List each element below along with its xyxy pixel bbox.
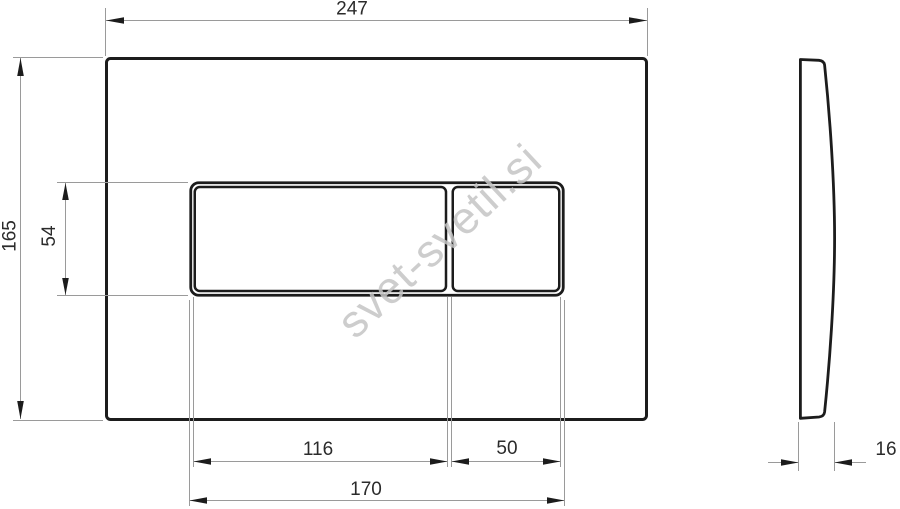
arrow-170-left [190,497,208,504]
technical-drawing-page: svet-svetil.si [0,0,900,509]
side-view [800,60,834,419]
side-profile-outline [800,60,834,419]
flush-plate-technical-drawing: svet-svetil.si [0,0,900,509]
arrow-247-left [106,17,124,24]
arrow-116-left [194,458,212,465]
arrow-54-top [62,183,69,200]
arrow-165-bottom [17,401,24,419]
dim-label-overall-height: 165 [0,220,21,252]
arrow-165-top [17,58,24,76]
dim-label-button-area-height: 54 [39,225,60,247]
dim-label-side-thickness: 16 [875,439,896,460]
arrow-116-right [430,458,448,465]
arrow-50-right [543,458,561,465]
arrow-50-left [452,458,470,465]
dim-label-small-button-width: 50 [496,438,517,459]
arrow-247-right [629,17,647,24]
arrow-16-right [835,459,853,466]
arrow-54-bottom [62,278,69,295]
arrow-16-left [781,459,799,466]
dim-label-large-button-width: 116 [303,439,333,460]
dim-label-overall-width: 247 [336,0,368,20]
front-view [107,59,647,420]
dim-label-button-area-width: 170 [350,479,382,500]
arrow-170-right [547,497,565,504]
